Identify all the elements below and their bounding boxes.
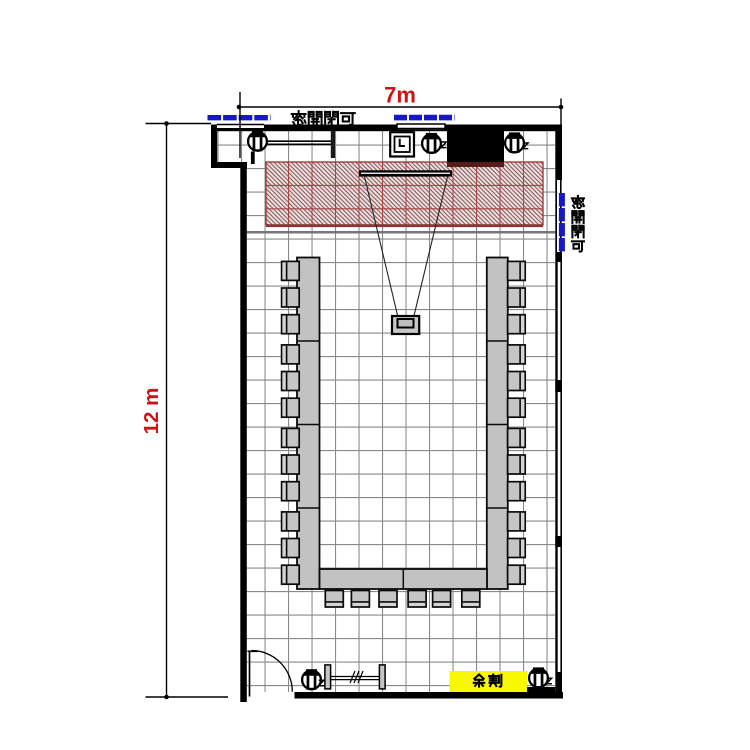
svg-text:7m: 7m — [384, 83, 416, 108]
svg-text:12 m: 12 m — [140, 388, 163, 435]
